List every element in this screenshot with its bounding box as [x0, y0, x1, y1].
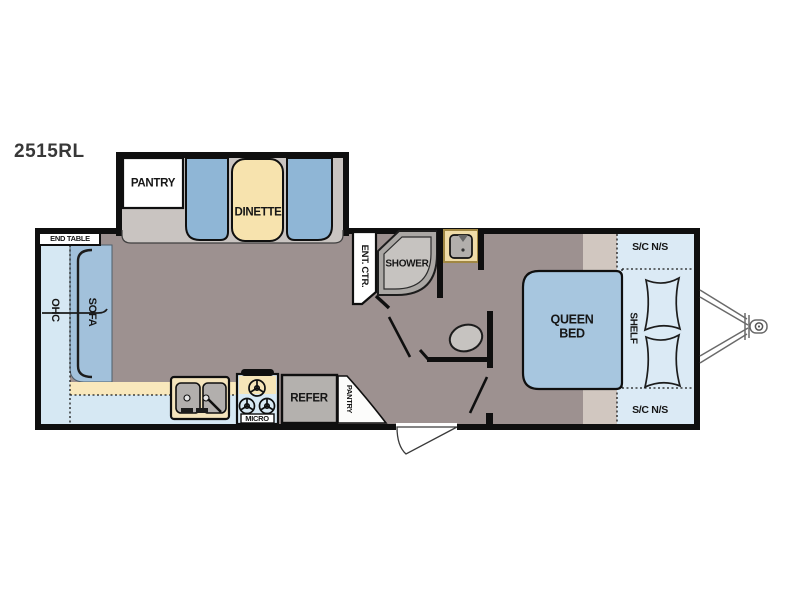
- wall-vanity-bedroom: [478, 228, 484, 270]
- scns-top-label: S/C N/S: [632, 241, 668, 254]
- ent-ctr-label: ENT. CTR.: [359, 245, 369, 288]
- floorplan-svg: [0, 0, 800, 600]
- dinette-seat-left: [186, 158, 228, 240]
- kitchen-pantry-label: PANTRY: [345, 385, 353, 413]
- refer-label: REFER: [290, 393, 327, 406]
- wall-bath-bottom: [427, 357, 490, 362]
- kitchen-sink: [171, 377, 229, 419]
- scns-bottom-label: S/C N/S: [632, 404, 668, 417]
- ohc-label: OHC: [49, 298, 61, 322]
- wall-stub-bottom: [486, 413, 493, 426]
- dinette-label: DINETTE: [234, 207, 281, 220]
- wall-shower-vanity: [437, 228, 443, 298]
- queen-bed-label: QUEEN BED: [543, 314, 601, 341]
- floorplan-canvas: 2515RL PANTRY DINETTE END TABLE OHC SOFA…: [0, 0, 800, 600]
- shelf-label: SHELF: [628, 312, 639, 343]
- slideout-pantry-label: PANTRY: [131, 178, 175, 191]
- plan-title: 2515RL: [14, 141, 85, 163]
- sofa-label: SOFA: [86, 298, 98, 327]
- end-table-label: END TABLE: [50, 235, 90, 243]
- bath-vanity-sink: [444, 230, 478, 262]
- pillow-top: [645, 278, 680, 330]
- hitch-a-frame: [700, 290, 767, 363]
- dinette-seat-right: [287, 158, 332, 240]
- micro-label: MICRO: [245, 415, 269, 423]
- dinette-table: [232, 159, 283, 241]
- shower-label: SHOWER: [385, 259, 428, 270]
- entry-door-swing: [397, 427, 457, 454]
- pillow-bottom: [645, 335, 680, 387]
